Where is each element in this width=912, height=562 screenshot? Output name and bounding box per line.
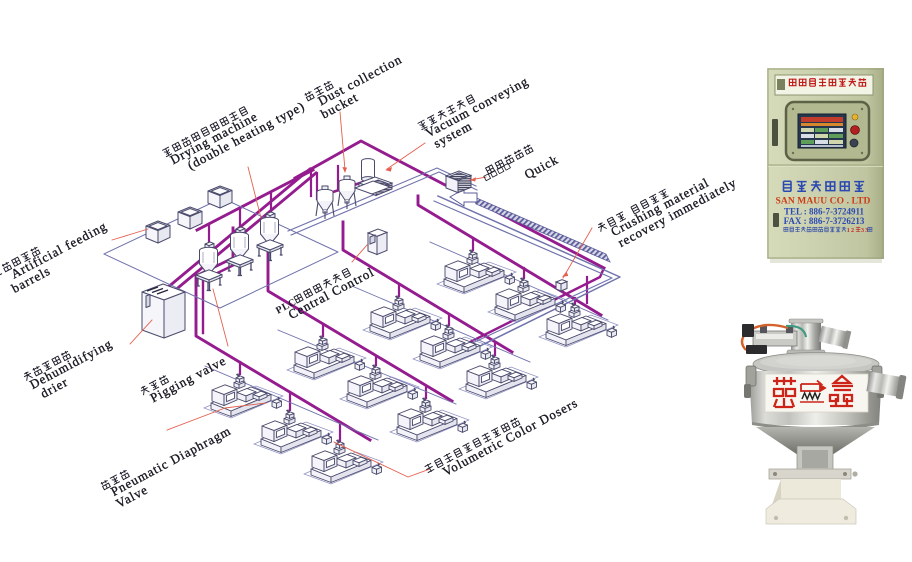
svg-text:SAN MAUU CO . LTD: SAN MAUU CO . LTD [775,197,870,207]
svg-text:1: 1 [847,228,850,234]
svg-text:TEL : 886-7-3724911: TEL : 886-7-3724911 [784,207,865,217]
svg-text:3: 3 [861,228,864,234]
svg-text:FAX : 886-7-3726213: FAX : 886-7-3726213 [784,216,865,226]
svg-text:2: 2 [851,228,854,234]
